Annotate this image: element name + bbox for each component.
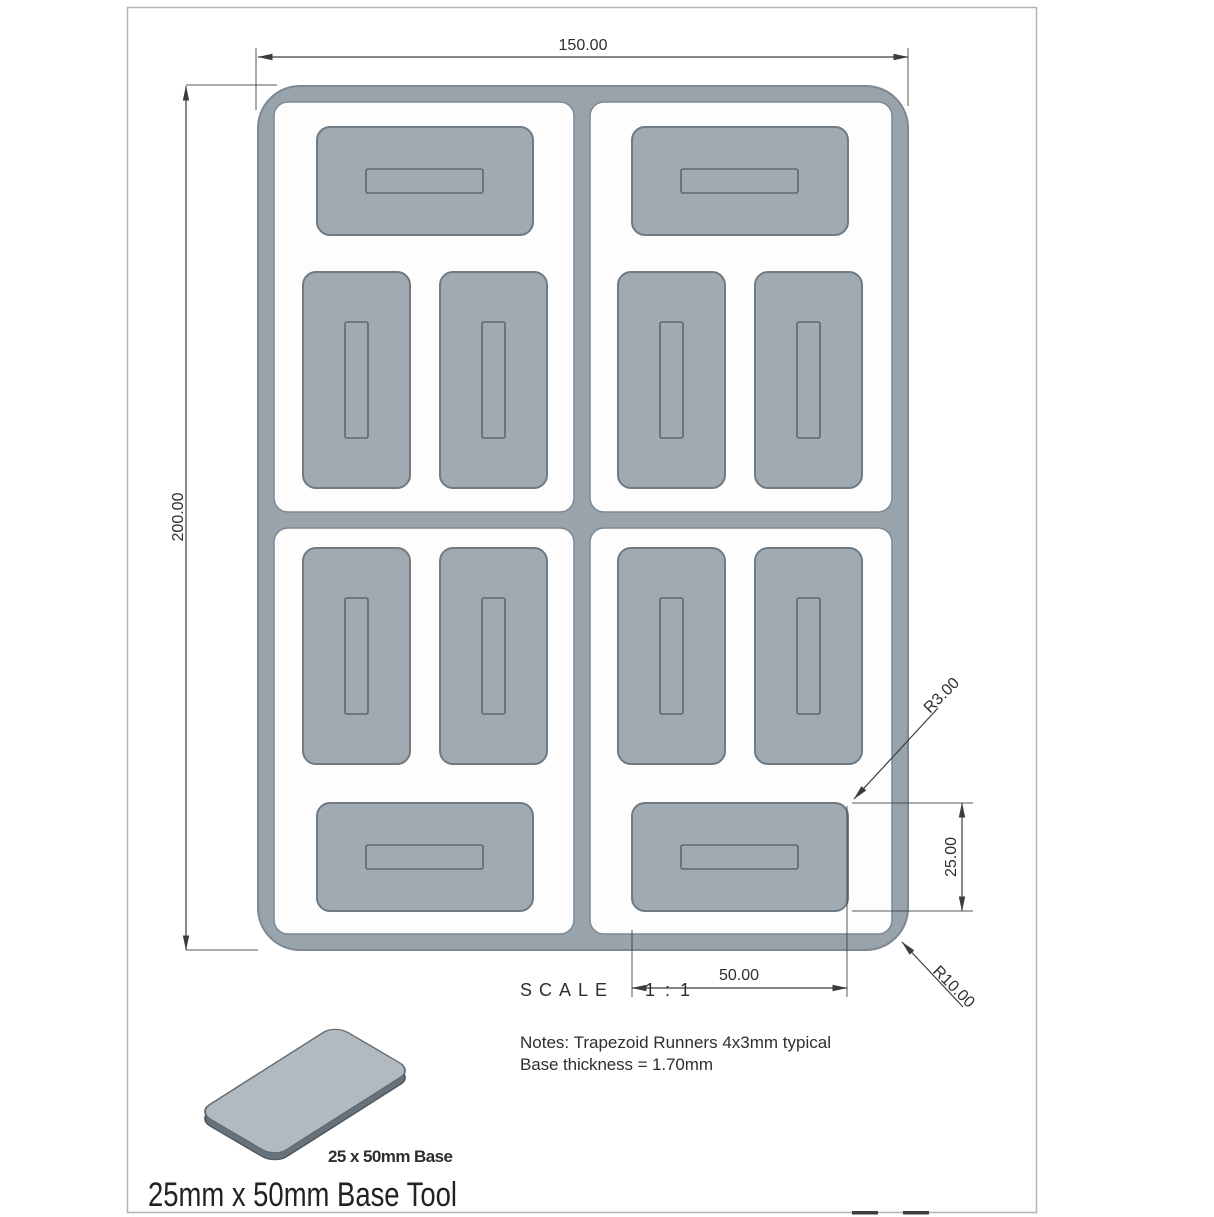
- dim-label-base-width: 50.00: [719, 967, 759, 984]
- vertical-base: [440, 272, 547, 488]
- vertical-base: [618, 548, 725, 764]
- vertical-base: [618, 272, 725, 488]
- iso-caption: 25 x 50mm Base: [328, 1147, 453, 1166]
- vertical-base: [303, 548, 410, 764]
- sheet-title: 25mm x 50mm Base Tool: [148, 1176, 457, 1214]
- technical-drawing-canvas: 150.00 200.00 50.00 25.00 R3.00 R10.00 S…: [0, 0, 1214, 1217]
- notes-line-1: Notes: Trapezoid Runners 4x3mm typical: [520, 1033, 831, 1052]
- vertical-base: [755, 548, 862, 764]
- vertical-base: [303, 272, 410, 488]
- scale-value: 1:1: [645, 980, 690, 1000]
- dim-label-overall-height: 200.00: [170, 492, 187, 541]
- vertical-base: [755, 272, 862, 488]
- notes-line-2: Base thickness = 1.70mm: [520, 1055, 713, 1074]
- scale-note: SCALE 1:1: [520, 980, 690, 1000]
- vertical-base: [440, 548, 547, 764]
- horizontal-base: [632, 803, 848, 911]
- horizontal-base: [317, 127, 533, 235]
- dim-label-overall-width: 150.00: [559, 37, 608, 54]
- drawing-sheet: 150.00 200.00 50.00 25.00 R3.00 R10.00 S…: [0, 0, 1214, 1217]
- tool-front-view: [258, 86, 908, 950]
- crop-dash: [852, 1211, 878, 1215]
- crop-dash: [903, 1211, 929, 1215]
- horizontal-base: [317, 803, 533, 911]
- horizontal-base: [632, 127, 848, 235]
- dim-label-base-height: 25.00: [943, 837, 960, 877]
